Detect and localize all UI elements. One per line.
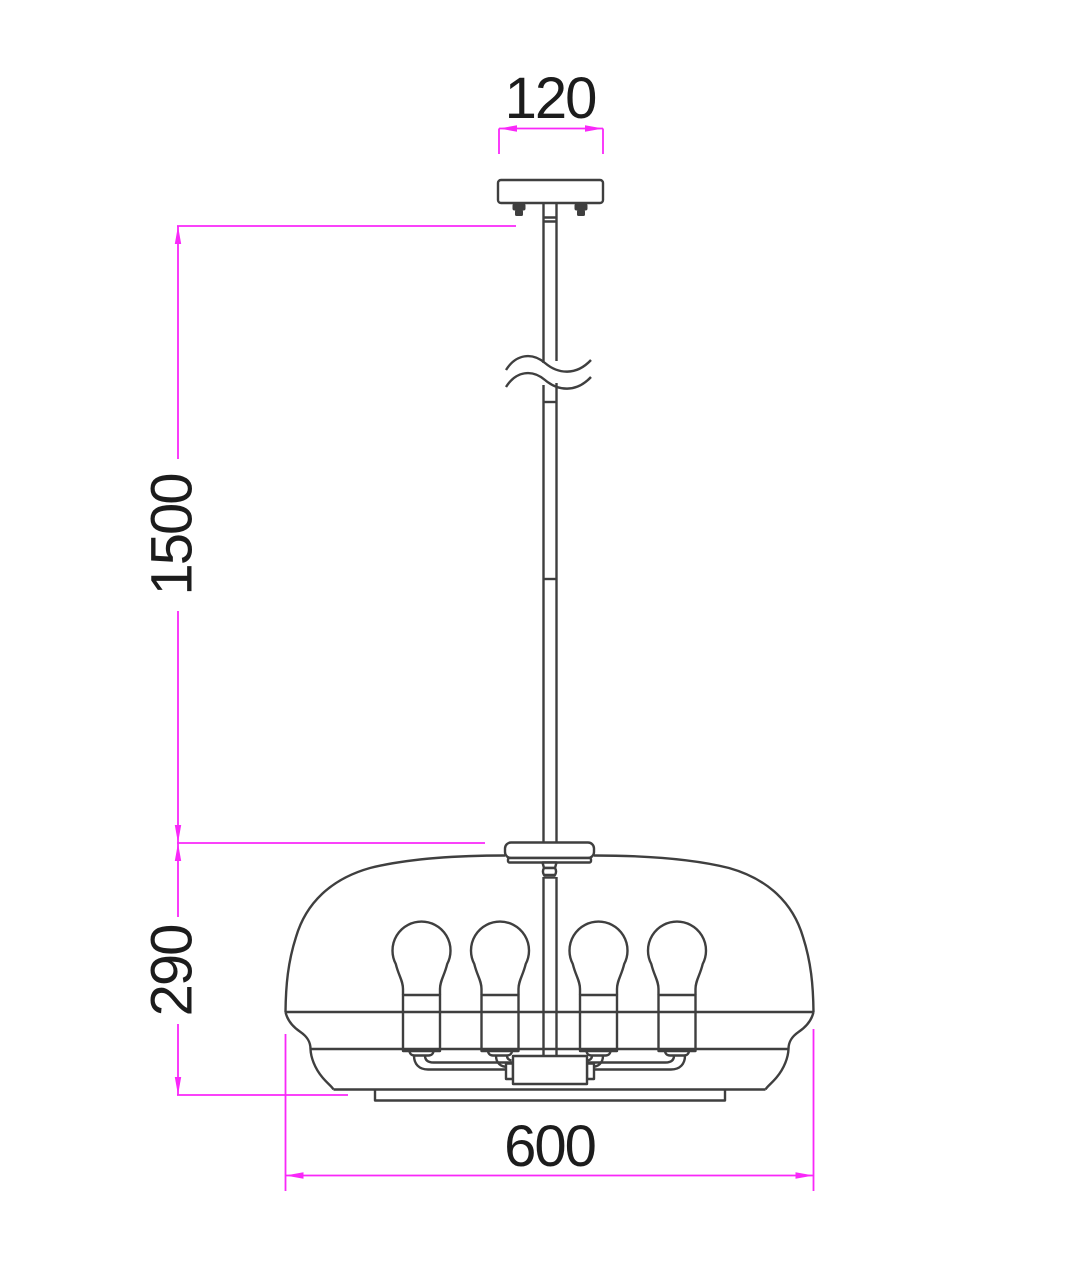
dome-left: [286, 856, 506, 1013]
arrow-down-icon: [175, 825, 181, 843]
bulb-4: [648, 922, 706, 1056]
bulb-glass: [392, 922, 450, 995]
bulb-2: [471, 922, 529, 1056]
canopy-screw-left: [513, 204, 526, 217]
bulb-socket: [403, 995, 440, 1051]
dome-right: [594, 856, 814, 1013]
skirt-right-upper: [789, 1012, 814, 1049]
bulb-glass: [471, 922, 529, 995]
arrow-left-icon: [286, 1172, 304, 1178]
central-hub: [506, 1056, 594, 1084]
dimension-label-canopy-width: 120: [505, 66, 596, 131]
skirt-left-upper: [286, 1012, 311, 1049]
bulb-3: [570, 922, 628, 1056]
rod-inside-shade: [544, 877, 557, 1057]
ceiling-canopy: [498, 180, 603, 216]
bottom-plate: [375, 1090, 725, 1101]
socket-flange: [410, 1051, 434, 1056]
dimension-label-shade-diameter: 600: [504, 1114, 595, 1179]
extension-lines: [499, 129, 603, 155]
bulb-glass: [648, 922, 706, 995]
bulb-glass: [570, 922, 628, 995]
break-symbol: [506, 356, 591, 389]
dimension-label-suspension-height: 1500: [140, 474, 205, 595]
canopy-plate: [498, 180, 603, 203]
shade-cap: [505, 843, 594, 878]
socket-flange: [665, 1051, 689, 1056]
canopy-screw-right: [575, 204, 588, 217]
bulb-socket: [580, 995, 617, 1051]
break-wave-top: [506, 356, 591, 372]
socket-flange: [587, 1051, 611, 1056]
skirt-right-lower: [766, 1049, 789, 1090]
drawing-canvas: 120 1500 290 600: [0, 0, 1080, 1271]
dimension-shade-height: 290: [140, 843, 349, 1095]
arrow-down-icon: [175, 1077, 181, 1095]
rod-collar: [544, 218, 557, 222]
cap-knuckle-lower: [543, 868, 556, 875]
bulbs: [392, 922, 705, 1056]
dimension-label-shade-height: 290: [140, 926, 205, 1017]
dimension-suspension-height: 1500: [140, 226, 517, 843]
bulb-socket: [659, 995, 696, 1051]
arrow-right-icon: [796, 1172, 814, 1178]
dimension-shade-diameter: 600: [286, 1029, 814, 1191]
socket-flange: [488, 1051, 512, 1056]
bulb-1: [392, 922, 450, 1056]
bulb-socket: [482, 995, 519, 1051]
technical-drawing-pendant-light: 120 1500 290 600: [0, 0, 1080, 1271]
arrow-up-icon: [175, 226, 181, 244]
break-wave-bottom: [506, 373, 591, 389]
suspension-rod: [544, 203, 557, 1057]
dimension-canopy-width: 120: [499, 66, 603, 154]
skirt-left-lower: [311, 1049, 334, 1090]
cap-disc: [505, 843, 594, 859]
arrow-up-icon: [175, 843, 181, 861]
hub-body: [513, 1056, 587, 1084]
